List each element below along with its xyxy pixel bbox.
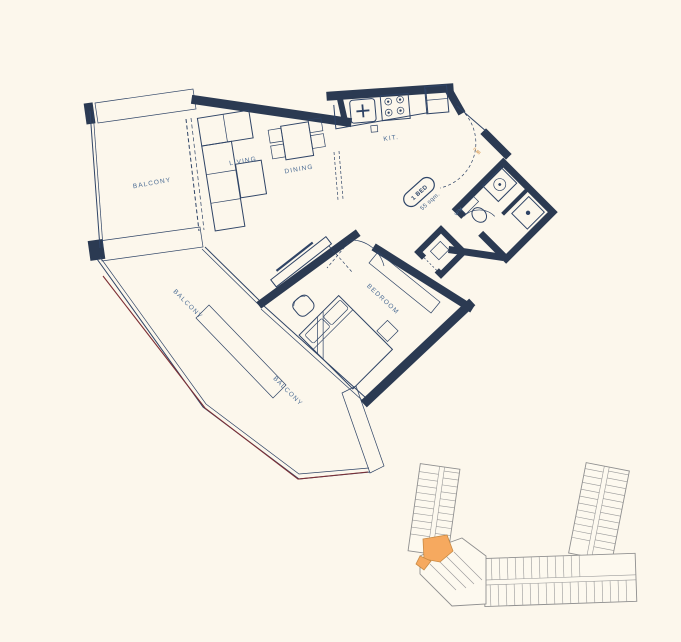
sofa [197, 110, 266, 231]
railing [97, 259, 370, 479]
party-wall [196, 100, 347, 122]
armchair [290, 292, 316, 318]
railing [100, 257, 369, 474]
railing [90, 111, 100, 248]
balcony-mid-label: BALCONY [171, 288, 203, 320]
bedroom-label: BEDROOM [365, 283, 400, 316]
sink-icon [349, 98, 376, 123]
nightstand [377, 320, 398, 341]
chair [268, 128, 283, 143]
floor-plan-page: 0.88 BALCONY LIVING DINING KIT. BALCONY … [0, 0, 681, 642]
entry-door: 0.88 [440, 106, 487, 188]
entry-wall [486, 134, 506, 154]
apartment-plan: 0.88 BALCONY LIVING DINING KIT. BALCONY … [84, 85, 553, 479]
keyplan-bottom-arm [483, 553, 637, 606]
keyplan-right-wing [569, 463, 630, 562]
laundry-door [424, 258, 437, 271]
outlet-icon [371, 125, 378, 132]
chair [271, 144, 286, 159]
washing-machine-icon [430, 241, 448, 259]
unit-badge: 1 BED 55 sqm. [401, 174, 445, 217]
pillow [323, 300, 348, 325]
dining-label: DINING [284, 163, 314, 175]
entry-door-dimension: 0.88 [472, 146, 482, 156]
bathroom [457, 163, 553, 259]
bathroom-door-arc [464, 201, 495, 232]
bedroom-wall-se [367, 305, 469, 401]
blanket-fold [299, 311, 347, 359]
key-plan [408, 463, 637, 607]
chair [311, 134, 326, 149]
balcony-pier [99, 227, 203, 261]
coffee-table [236, 160, 267, 198]
balcony-piers [84, 89, 384, 473]
dining-table [268, 118, 327, 162]
balcony-top-label: BALCONY [132, 177, 171, 191]
balcony-pier [95, 89, 196, 123]
balcony-slider-door [186, 118, 204, 231]
kitchen-opening [334, 151, 343, 200]
living-label: LIVING [229, 156, 258, 168]
balcony-bottom-label: BALCONY [271, 375, 303, 407]
glass-wall [202, 249, 260, 306]
glass-wall [205, 247, 263, 304]
kitchen-label: KIT. [383, 134, 399, 143]
